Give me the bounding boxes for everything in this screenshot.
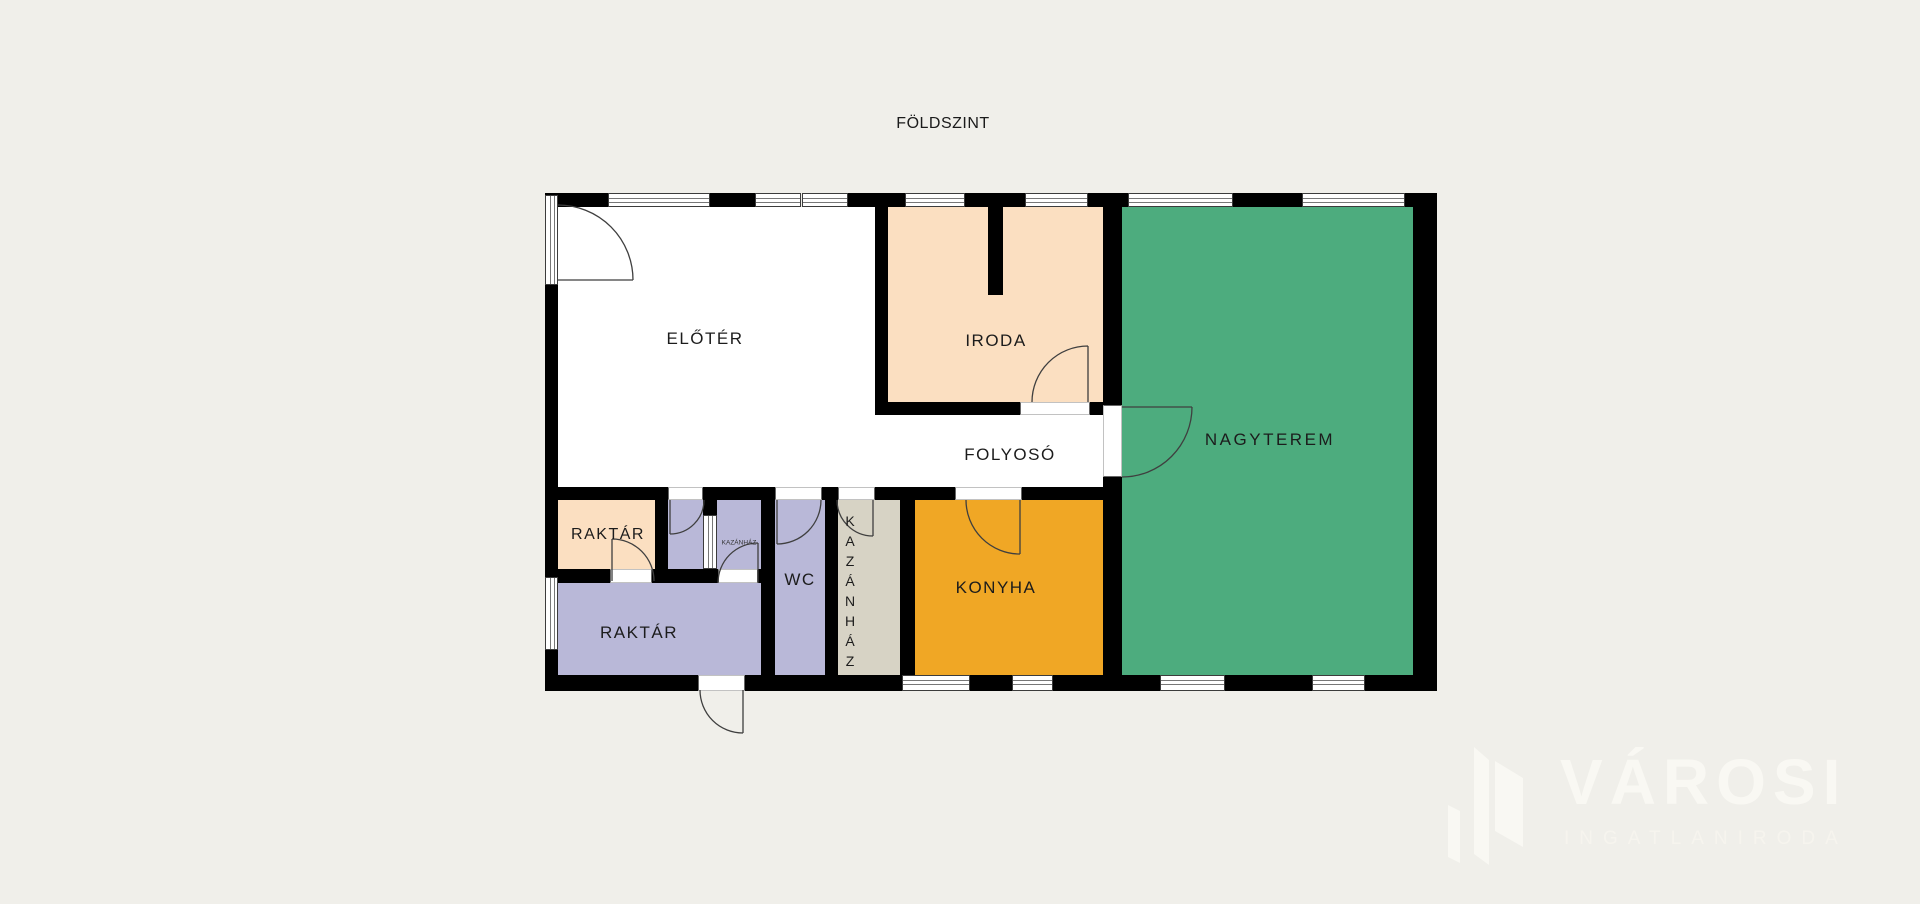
wall-segment bbox=[822, 487, 838, 500]
wall-segment bbox=[900, 500, 915, 675]
room-label-konyha: KONYHA bbox=[956, 578, 1037, 598]
wall-segment bbox=[558, 569, 610, 583]
watermark-brand: VÁROSI bbox=[1560, 745, 1847, 819]
door-threshold bbox=[698, 675, 745, 691]
floor-plan: ELŐTÉR IRODA NAGYTEREM FOLYOSÓ RAKTÁR RA… bbox=[545, 193, 1437, 691]
door-threshold bbox=[1103, 405, 1122, 477]
wall-segment bbox=[965, 193, 1025, 207]
wall-segment bbox=[655, 487, 668, 583]
wall-segment bbox=[558, 487, 668, 500]
room-label-kazanhaz-small: KAZÁNHÁZ bbox=[722, 540, 757, 547]
room-label-iroda: IRODA bbox=[965, 331, 1026, 351]
wall-segment bbox=[875, 487, 955, 500]
door-threshold bbox=[668, 487, 703, 500]
window bbox=[1025, 193, 1088, 207]
wall-segment bbox=[1365, 675, 1413, 691]
window bbox=[545, 195, 558, 285]
wall-segment bbox=[703, 487, 775, 500]
door-threshold bbox=[718, 569, 758, 583]
wall-segment bbox=[545, 285, 558, 577]
room-label-folyoso: FOLYOSÓ bbox=[964, 445, 1055, 465]
room-label-wc: WC bbox=[784, 570, 815, 590]
room-label-raktar-small: RAKTÁR bbox=[571, 526, 645, 544]
wall-segment bbox=[970, 675, 1012, 691]
wall-segment bbox=[1088, 193, 1128, 207]
door-threshold bbox=[838, 487, 875, 500]
room-label-raktar-large: RAKTÁR bbox=[600, 623, 678, 643]
wall-segment bbox=[1103, 207, 1122, 405]
window bbox=[755, 193, 801, 207]
room-label-kazanhaz: KAZÁNHÁZ bbox=[842, 513, 858, 673]
window bbox=[1128, 193, 1233, 207]
wall-segment bbox=[761, 500, 775, 675]
wall-segment bbox=[1053, 675, 1160, 691]
wall-segment bbox=[703, 500, 717, 515]
window bbox=[1312, 675, 1365, 691]
window bbox=[1302, 193, 1405, 207]
wall-segment bbox=[848, 193, 905, 207]
door-threshold bbox=[775, 487, 822, 500]
room-label-nagyterem: NAGYTEREM bbox=[1205, 430, 1335, 450]
wall-segment bbox=[1103, 477, 1122, 675]
watermark-logo: VÁROSI INGATLANIRODA bbox=[1448, 743, 1893, 888]
wall-segment bbox=[1413, 193, 1437, 691]
door-arc-exterior bbox=[700, 690, 743, 733]
window bbox=[905, 193, 965, 207]
wall-segment bbox=[710, 193, 755, 207]
wall-segment bbox=[1225, 675, 1312, 691]
wall-segment bbox=[1233, 193, 1302, 207]
door-threshold bbox=[955, 487, 1022, 500]
door-threshold bbox=[610, 569, 652, 583]
page-background: FÖLDSZINT bbox=[0, 0, 1920, 904]
watermark-subtitle: INGATLANIRODA bbox=[1564, 828, 1848, 850]
window bbox=[1160, 675, 1225, 691]
wall-segment bbox=[745, 675, 902, 691]
wall-segment bbox=[825, 500, 838, 675]
wall-segment bbox=[545, 675, 698, 691]
wall-segment bbox=[875, 402, 1020, 415]
window bbox=[1012, 675, 1053, 691]
window-partition bbox=[703, 515, 717, 569]
buildings-icon bbox=[1448, 745, 1548, 867]
window bbox=[902, 675, 970, 691]
room-label-eloter: ELŐTÉR bbox=[666, 329, 743, 349]
window bbox=[608, 193, 710, 207]
window bbox=[802, 193, 848, 207]
floor-title: FÖLDSZINT bbox=[896, 115, 989, 133]
window bbox=[545, 577, 558, 650]
wall-segment bbox=[875, 207, 888, 402]
wall-stub-iroda bbox=[988, 207, 1003, 295]
door-threshold bbox=[1020, 402, 1090, 415]
